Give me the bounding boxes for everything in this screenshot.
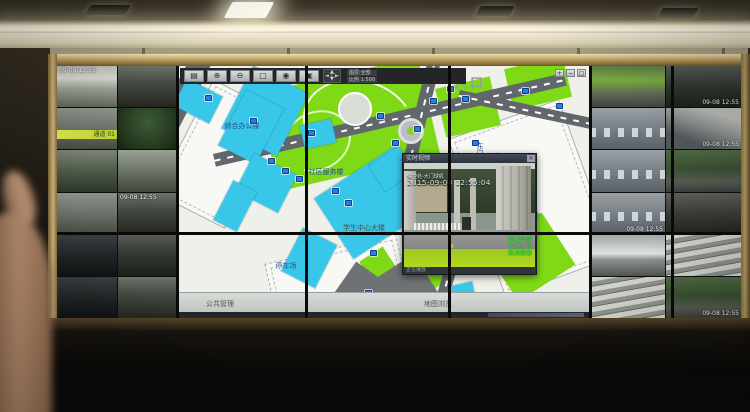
camera-marker[interactable] — [392, 140, 399, 146]
camera-tile[interactable]: 09-08 12:55 — [590, 193, 665, 234]
camera-tile[interactable] — [590, 108, 665, 149]
video-building — [413, 184, 447, 212]
camera-marker[interactable] — [377, 113, 384, 119]
map-plaza — [338, 92, 372, 126]
camera-tile[interactable] — [590, 150, 665, 191]
popup-titlebar[interactable]: 实时视频 × — [403, 154, 536, 163]
monitor-bezel — [448, 66, 451, 318]
monitor-bezel — [671, 66, 674, 318]
layers-icon[interactable]: ▤ — [184, 70, 204, 82]
ptz-left-icon[interactable]: ◄ — [325, 74, 329, 79]
video-location-osd: 出口车道 大门广场 高清摄像 — [508, 236, 532, 257]
camera-tile[interactable] — [118, 66, 178, 107]
video-wall: 09-08 12:55通道 0109-08 12:55 — [57, 66, 741, 318]
camera-tile[interactable] — [57, 235, 117, 276]
camera-tile[interactable]: 通道 01 — [57, 108, 117, 149]
video-wall-frame — [48, 318, 750, 332]
tile-timestamp-osd: 09-08 12:55 — [702, 99, 739, 106]
video-wall-frame — [741, 54, 750, 332]
zoom-in-icon[interactable]: ⊕ — [207, 70, 227, 82]
camera-marker[interactable] — [205, 95, 212, 101]
camera-tile[interactable]: 09-08 12:55 — [666, 108, 741, 149]
camera-tile[interactable] — [666, 235, 741, 276]
video-guard-booth — [462, 217, 471, 229]
map-label: 社区服务楼 — [309, 167, 344, 177]
right-camera-monitors: 09-08 12:5509-08 12:5509-08 12:5509-08 1… — [590, 66, 741, 318]
zoom-in-icon[interactable]: + — [555, 69, 564, 77]
tile-timestamp-osd: 09-08 12:55 — [702, 310, 739, 317]
map-label: 停车场 — [276, 261, 297, 271]
live-video-popup[interactable]: 实时视频 × 保卫处-大门球机 2015 — [402, 153, 537, 275]
map-monitor-group[interactable]: ▤⊕⊖□◉▣ ▲ ▼ ◄ ► □ 图层:全部 比例 1:500 +−□ 入口学生… — [178, 66, 590, 318]
control-room-photo: 09-08 12:55通道 0109-08 12:55 — [0, 0, 750, 412]
camera-marker[interactable] — [462, 96, 469, 102]
video-wall-frame — [48, 54, 750, 66]
camera-marker[interactable] — [430, 98, 437, 104]
camera-tile[interactable] — [590, 277, 665, 318]
monitor-bezel — [176, 66, 179, 318]
ceiling-light — [475, 6, 514, 16]
ceiling-light — [85, 5, 130, 15]
video-icon[interactable]: ▣ — [299, 70, 319, 82]
map-toolbar: ▤⊕⊖□◉▣ ▲ ▼ ◄ ► □ 图层:全部 比例 1:500 — [180, 68, 466, 84]
zoom-out-icon[interactable]: − — [566, 69, 575, 77]
map-info-line: 图层:全部 — [347, 70, 377, 76]
camera-tile[interactable] — [118, 108, 178, 149]
tile-banner: 通道 01 — [57, 130, 117, 139]
camera-marker[interactable] — [345, 200, 352, 206]
camera-tile[interactable] — [57, 150, 117, 191]
map-info: 图层:全部 比例 1:500 — [347, 70, 377, 83]
camera-tile[interactable] — [118, 150, 178, 191]
camera-marker[interactable] — [282, 168, 289, 174]
ptz-dpad[interactable]: ▲ ▼ ◄ ► □ — [323, 69, 341, 83]
close-icon[interactable]: × — [527, 155, 535, 162]
camera-tile[interactable] — [118, 235, 178, 276]
ceiling-light — [657, 8, 698, 18]
osd-line: 高清摄像 — [508, 250, 532, 257]
tile-timestamp-osd: 09-08 12:55 — [59, 67, 96, 74]
monitor-bezel — [589, 66, 592, 318]
camera-tile[interactable]: 09-08 12:55 — [666, 277, 741, 318]
hand-palm — [0, 212, 52, 412]
camera-tile[interactable]: 09-08 12:55 — [118, 193, 178, 234]
camera-marker[interactable] — [296, 176, 303, 182]
camera-marker[interactable] — [522, 88, 529, 94]
camera-tile[interactable] — [666, 193, 741, 234]
photographer-hand — [0, 168, 66, 412]
monitor-bezel — [305, 66, 308, 318]
ptz-center-icon[interactable]: □ — [331, 74, 336, 79]
camera-tile[interactable] — [590, 66, 665, 107]
tile-timestamp-osd: 09-08 12:55 — [120, 194, 157, 201]
camera-tile[interactable] — [57, 193, 117, 234]
camera-tile[interactable] — [590, 235, 665, 276]
osd-line: 大门广场 — [508, 243, 532, 250]
camera-tile[interactable]: 09-08 12:55 — [666, 66, 741, 107]
map-label: 综合办公楼 — [225, 121, 260, 131]
camera-tile[interactable] — [666, 150, 741, 191]
zoom-out-icon[interactable]: ⊖ — [230, 70, 250, 82]
camera-tile[interactable]: 09-08 12:55 — [57, 66, 117, 107]
ceiling-light — [224, 2, 275, 18]
tile-timestamp-osd: 09-08 12:55 — [702, 141, 739, 148]
camera-marker[interactable] — [556, 103, 563, 109]
camera-marker[interactable] — [268, 158, 275, 164]
camera-marker[interactable] — [308, 130, 315, 136]
popup-title: 实时视频 — [406, 155, 430, 162]
camera-tile[interactable] — [118, 277, 178, 318]
status-text: 公共管理 — [206, 299, 234, 309]
osd-line: 出口车道 — [508, 236, 532, 243]
camera-marker[interactable] — [370, 250, 377, 256]
camera-marker[interactable] — [414, 126, 421, 132]
wall-base — [0, 332, 750, 412]
taskbar — [178, 312, 590, 318]
popup-footer: 正在播放 — [403, 267, 536, 274]
camera-marker[interactable] — [332, 188, 339, 194]
popup-video: 保卫处-大门球机 2015-09-08 12:55:04 出口车道 大门广场 高… — [404, 163, 535, 267]
select-icon[interactable]: □ — [253, 70, 273, 82]
left-camera-monitors: 09-08 12:55通道 0109-08 12:55 — [57, 66, 178, 318]
monitor-bezel — [57, 232, 741, 235]
ceiling-fascia — [0, 33, 750, 48]
map-info-line: 比例 1:500 — [347, 77, 377, 83]
locate-icon[interactable]: ◉ — [276, 70, 296, 82]
fullscreen-icon[interactable]: □ — [577, 69, 586, 77]
map-status-bar: 公共管理 地图浏览 — [178, 292, 590, 312]
camera-tile[interactable] — [57, 277, 117, 318]
system-tray[interactable] — [488, 313, 584, 317]
